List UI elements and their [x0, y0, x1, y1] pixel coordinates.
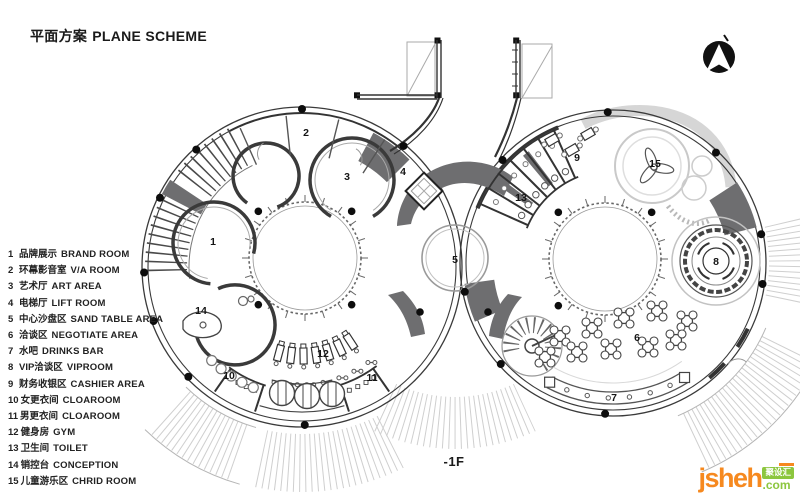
legend-item: 13卫生间TOILET [8, 441, 163, 457]
legend-item-number: 12 [8, 425, 19, 441]
room-label: 6 [634, 332, 640, 344]
page-title-en: PLANE SCHEME [92, 28, 207, 44]
legend-item-en: VIPROOM [67, 362, 113, 373]
legend-item-number: 8 [8, 360, 17, 376]
brand-watermark: jsheh聚设汇.com [698, 465, 794, 492]
legend-item-en: LIFT ROOM [52, 298, 106, 309]
legend-item-number: 9 [8, 377, 17, 393]
legend-item-en: GYM [53, 427, 75, 438]
legend-item: 9财务收银区CASHIER AREA [8, 377, 163, 393]
legend-item-number: 2 [8, 263, 17, 279]
legend: 1品牌展示BRAND ROOM2环幕影音室V/A ROOM3艺术厅ART ARE… [8, 247, 163, 490]
legend-item-en: CLOAROOM [62, 411, 120, 422]
legend-item-en: BRAND ROOM [61, 249, 130, 260]
legend-item: 14销控台CONCEPTION [8, 458, 163, 474]
legend-item-number: 7 [8, 344, 17, 360]
legend-item-zh: 儿童游乐区 [21, 476, 69, 487]
legend-item: 11男更衣间CLOAROOM [8, 409, 163, 425]
legend-item-zh: 财务收银区 [19, 379, 67, 390]
legend-item-zh: 女更衣间 [21, 395, 59, 406]
legend-item-en: CLOAROOM [63, 395, 121, 406]
legend-item-en: TOILET [53, 443, 88, 454]
room-label: 8 [713, 256, 719, 268]
legend-item-number: 6 [8, 328, 17, 344]
legend-item: 10女更衣间CLOAROOM [8, 393, 163, 409]
legend-item: 1品牌展示BRAND ROOM [8, 247, 163, 263]
room-label: 4 [400, 166, 406, 178]
legend-item-zh: 男更衣间 [20, 411, 58, 422]
legend-item: 7水吧DRINKS BAR [8, 344, 163, 360]
room-label: 10 [223, 370, 235, 382]
legend-item-number: 11 [8, 409, 18, 425]
legend-item-zh: 中心沙盘区 [19, 314, 67, 325]
room-label: 5 [452, 254, 458, 266]
legend-item-zh: 洽谈区 [19, 330, 48, 341]
room-label: 2 [303, 127, 309, 139]
legend-item: 4电梯厅LIFT ROOM [8, 296, 163, 312]
legend-item-zh: 销控台 [21, 460, 50, 471]
legend-item: 15儿童游乐区CHRID ROOM [8, 474, 163, 490]
brand-name: jsheh [698, 463, 761, 493]
brand-tld: .com [762, 479, 794, 492]
legend-item-number: 4 [8, 296, 17, 312]
legend-item-number: 15 [8, 474, 19, 490]
room-label: 1 [210, 236, 216, 248]
legend-item: 5中心沙盘区SAND TABLE AREA [8, 312, 163, 328]
north-arrow-icon [703, 35, 735, 73]
legend-item-zh: VIP洽谈区 [19, 362, 63, 373]
legend-item-en: DRINKS BAR [42, 346, 104, 357]
legend-item-en: V/A ROOM [71, 265, 120, 276]
room-label: 11 [366, 372, 377, 384]
legend-item-zh: 环幕影音室 [19, 265, 67, 276]
brand-accent-tick [779, 463, 794, 466]
legend-item-number: 14 [8, 458, 19, 474]
reception-desk [183, 296, 254, 338]
legend-item-en: NEGOTIATE AREA [52, 330, 139, 341]
room-label: 9 [574, 152, 580, 164]
legend-item-number: 3 [8, 279, 17, 295]
room-label: 3 [344, 171, 350, 183]
legend-item: 3艺术厅ART AREA [8, 279, 163, 295]
floor-level-label: -1F [404, 454, 504, 469]
room-label: 12 [317, 348, 329, 360]
page-title-zh: 平面方案 [30, 28, 87, 44]
drinks-bar [545, 359, 747, 404]
legend-item-number: 10 [8, 393, 19, 409]
legend-item: 6洽谈区NEGOTIATE AREA [8, 328, 163, 344]
legend-item-en: SAND TABLE AREA [71, 314, 164, 325]
legend-item: 12健身房GYM [8, 425, 163, 441]
legend-item-number: 5 [8, 312, 17, 328]
legend-item-en: ART AREA [52, 281, 102, 292]
page: 123456789101112131415 平面方案PLANE SCHEME 1… [0, 0, 800, 495]
room-label: 14 [195, 305, 207, 317]
legend-item-zh: 健身房 [21, 427, 50, 438]
terrace-fans [145, 220, 800, 484]
legend-item-en: CASHIER AREA [71, 379, 145, 390]
room-label: 7 [611, 392, 617, 404]
page-title: 平面方案PLANE SCHEME [30, 26, 207, 46]
legend-item-zh: 水吧 [19, 346, 38, 357]
legend-item-zh: 卫生间 [21, 443, 50, 454]
legend-item-number: 13 [8, 441, 19, 457]
legend-item-zh: 品牌展示 [19, 249, 57, 260]
legend-item-number: 1 [8, 247, 17, 263]
legend-item-zh: 电梯厅 [19, 298, 48, 309]
legend-item-zh: 艺术厅 [19, 281, 48, 292]
legend-item: 2环幕影音室V/A ROOM [8, 263, 163, 279]
legend-item-en: CHRID ROOM [72, 476, 136, 487]
legend-item: 8VIP洽谈区VIPROOM [8, 360, 163, 376]
room-label: 15 [649, 158, 661, 170]
room-label: 13 [515, 192, 527, 204]
legend-item-en: CONCEPTION [53, 460, 118, 471]
